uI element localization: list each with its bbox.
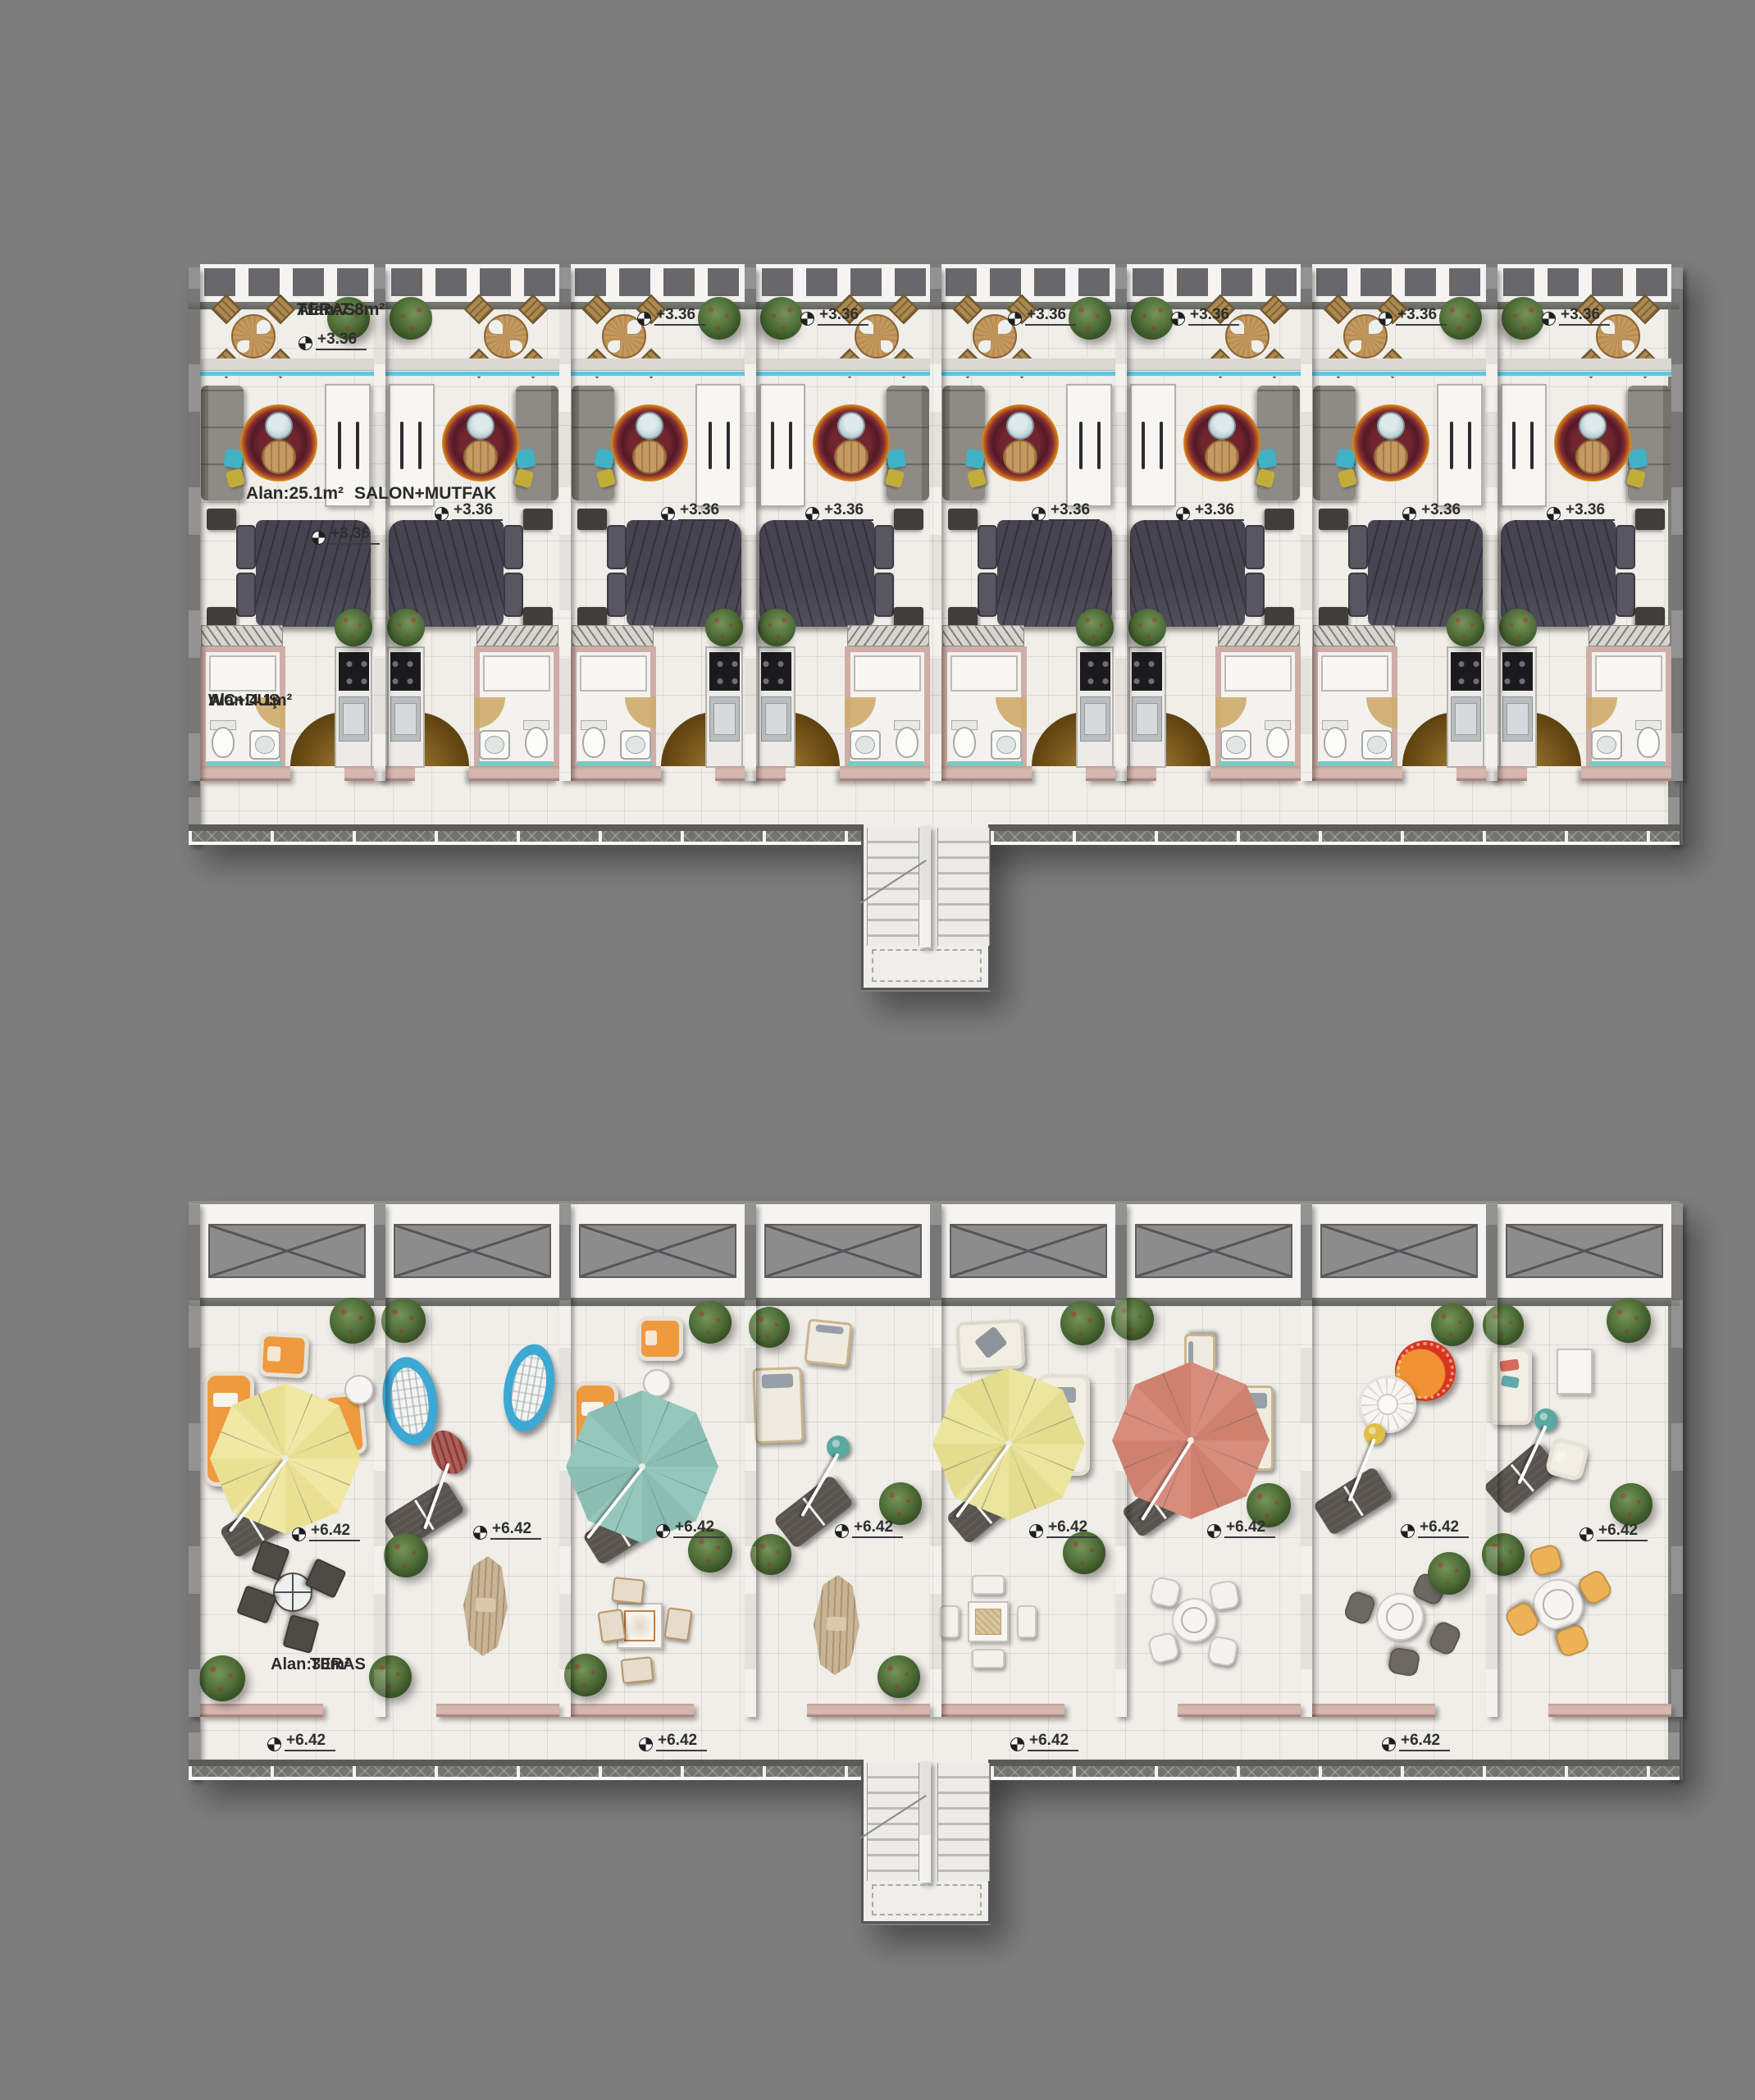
plant (1499, 609, 1537, 646)
wardrobe-door-panel (1501, 384, 1547, 507)
elevation-marker: +3.36 (637, 307, 705, 326)
stair-center-wall (919, 1761, 931, 1883)
elevation-marker-value: +6.42 (1046, 1519, 1097, 1538)
roof-terrace-label-area: Alan:30m² (271, 1655, 350, 1675)
pergola-slats (575, 268, 741, 296)
elevation-marker: +6.42 (1382, 1732, 1450, 1751)
door-handle (338, 422, 341, 469)
parasol-umbrella (210, 1383, 361, 1534)
elevation-marker: +3.36 (435, 502, 503, 521)
stove (1132, 652, 1162, 691)
elevation-marker-value: +3.36 (1188, 307, 1239, 326)
plant (689, 1301, 732, 1344)
plant (387, 609, 425, 646)
elevation-marker-symbol (267, 1737, 281, 1751)
chair (664, 1607, 693, 1641)
elevation-marker: +6.42 (292, 1522, 360, 1541)
kitchen-sink (339, 696, 369, 742)
bed-pillow (1348, 573, 1368, 617)
plant (1131, 297, 1174, 340)
door-handle (771, 422, 774, 469)
sliding-glass-door (571, 371, 745, 377)
stair-flight (937, 1763, 990, 1881)
elevation-marker-symbol (1207, 1524, 1221, 1538)
pergola-slats (204, 268, 370, 296)
shower (580, 655, 647, 692)
stair-landing (872, 1884, 982, 1915)
toilet (896, 727, 919, 758)
table (1557, 1349, 1593, 1395)
upper-unit-4 (756, 264, 930, 781)
elevation-marker: +6.42 (1207, 1519, 1275, 1538)
bathroom-sink (620, 730, 651, 760)
sliding-glass-door (756, 371, 930, 377)
plant (1076, 609, 1114, 646)
wardrobe (942, 625, 1024, 646)
door-handle (789, 422, 792, 469)
round-table (1172, 1598, 1216, 1642)
elevation-marker-symbol (473, 1526, 487, 1540)
skylight-panel (208, 1224, 366, 1278)
shower (1595, 655, 1662, 692)
elevation-marker-value: +6.42 (673, 1519, 724, 1538)
elevation-marker-value: +6.42 (309, 1522, 360, 1541)
elevation-marker: +6.42 (1010, 1732, 1078, 1751)
table (968, 1601, 1009, 1642)
elevation-marker: +3.36 (1032, 502, 1100, 521)
bed-pillow (236, 525, 256, 569)
elevation-marker-value: +6.42 (1224, 1519, 1275, 1538)
stove (390, 652, 421, 691)
chair (972, 1649, 1005, 1669)
wood-coffee-table (1374, 440, 1408, 474)
elevation-marker: +3.36 (312, 526, 380, 545)
elevation-marker-value: +6.42 (656, 1732, 707, 1751)
plant (760, 297, 803, 340)
unit-bottom-wall (1086, 766, 1115, 781)
bathroom-sink (1361, 730, 1393, 760)
bed-pillow (978, 525, 997, 569)
kitchen-sink (1132, 696, 1162, 742)
wardrobe-door-panel (1066, 384, 1112, 507)
glass-coffee-table (467, 412, 495, 440)
elevation-marker-symbol (1008, 312, 1022, 326)
roof-pergola-band (1497, 1204, 1671, 1298)
plant (1502, 297, 1544, 340)
wicker-armchair (258, 1331, 310, 1378)
chair (612, 1577, 645, 1605)
bathroom-sink (991, 730, 1022, 760)
wall (745, 267, 756, 781)
shower (209, 655, 276, 692)
terrace-edge (571, 358, 745, 371)
glass-coffee-table (1006, 412, 1034, 440)
skylight-panel (579, 1224, 736, 1278)
stove (1502, 652, 1533, 691)
toilet (1266, 727, 1289, 758)
bed-pillow (504, 525, 523, 569)
wall (930, 267, 941, 781)
elevation-marker-symbol (1176, 507, 1190, 521)
wall (189, 1203, 200, 1717)
sun-lounger (804, 1318, 852, 1367)
nightstand (523, 509, 553, 530)
pillow-teal (886, 448, 906, 468)
elevation-marker: +3.36 (1402, 502, 1470, 521)
wardrobe (201, 625, 283, 646)
wc-shower-label-area: Alan:4.1m² (208, 692, 292, 711)
skylight-panel (1320, 1224, 1478, 1278)
door-handle (1530, 422, 1534, 469)
roof-unit-bottom-wall (200, 1704, 323, 1717)
wardrobe-door-panel (695, 384, 741, 507)
pergola-slats (1316, 268, 1482, 296)
door-handle (1079, 422, 1083, 469)
elevation-marker-symbol (1029, 1524, 1043, 1538)
elevation-marker: +6.42 (1579, 1522, 1648, 1541)
bed-pillow (1616, 525, 1635, 569)
kitchen-sink (709, 696, 740, 742)
bed-pillow (504, 573, 523, 617)
corridor-railing (189, 1760, 861, 1780)
wall (1301, 1203, 1312, 1717)
wall (1486, 1203, 1497, 1717)
door-handle (1512, 422, 1516, 469)
elevation-marker-value: +3.36 (316, 331, 367, 350)
shower (950, 655, 1018, 692)
unit-bottom-wall (1581, 766, 1671, 781)
unit-bottom-wall (756, 766, 786, 781)
bed-pillow (874, 573, 894, 617)
roof-unit-bottom-wall (571, 1704, 694, 1717)
wood-coffee-table (834, 440, 868, 474)
bed-pillow (1348, 525, 1368, 569)
roof-pergola-band (200, 1204, 374, 1298)
elevation-marker-value: +3.36 (818, 307, 868, 326)
upper-unit-8 (1497, 264, 1671, 781)
elevation-marker-value: +3.36 (329, 526, 380, 545)
roof-pergola-band (1127, 1204, 1301, 1298)
pergola-slats (390, 268, 555, 296)
stove (1080, 652, 1110, 691)
glass-coffee-table (1377, 412, 1405, 440)
elevation-marker-symbol (1032, 507, 1046, 521)
upper-terrace-label-area: Alan:7.8m² (297, 300, 385, 321)
nightstand (207, 509, 236, 530)
elevation-marker: +3.36 (1171, 307, 1239, 326)
terrace-table (484, 314, 528, 358)
terrace-edge (1312, 358, 1486, 371)
elevation-marker-symbol (435, 507, 449, 521)
plant (1428, 1552, 1470, 1595)
elevation-marker-symbol (805, 507, 819, 521)
roof-pergola-band (1312, 1204, 1486, 1298)
elevation-marker-value: +6.42 (1399, 1732, 1450, 1751)
elevation-marker-symbol (1171, 312, 1185, 326)
glass-coffee-table (265, 412, 293, 440)
elevation-marker-symbol (1010, 1737, 1024, 1751)
unit-bottom-wall (1127, 766, 1156, 781)
kitchen-sink (390, 696, 421, 742)
roof-stairwell (861, 1760, 991, 1924)
upper-unit-5 (941, 264, 1115, 781)
stove (339, 652, 369, 691)
elevation-marker-symbol (1379, 312, 1393, 326)
door-handle (400, 422, 403, 469)
toilet (953, 727, 976, 758)
unit-bottom-wall (469, 766, 559, 781)
elevation-marker-symbol (1401, 1524, 1415, 1538)
wardrobe-door-panel (1437, 384, 1483, 507)
wood-coffee-table (1205, 440, 1239, 474)
pillow-teal (1627, 448, 1648, 468)
roof-pergola-band (756, 1204, 930, 1298)
shower (854, 655, 921, 692)
chair (621, 1656, 654, 1684)
pillow-teal (515, 448, 536, 468)
plant (705, 609, 743, 646)
roof-unit-bottom-wall (1548, 1704, 1671, 1717)
plant (384, 1533, 428, 1577)
upper-unit-7 (1312, 264, 1486, 781)
kitchen-sink (1080, 696, 1110, 742)
elevation-marker: +3.36 (661, 502, 729, 521)
plant (1607, 1299, 1651, 1343)
wall (374, 1203, 385, 1717)
elevation-marker-symbol (1542, 312, 1556, 326)
elevation-marker-symbol (835, 1524, 849, 1538)
shower (1321, 655, 1388, 692)
elevation-marker-value: +6.42 (1028, 1732, 1078, 1751)
unit-bottom-wall (1456, 766, 1486, 781)
roof-pergola-band (941, 1204, 1115, 1298)
toilet (1637, 727, 1660, 758)
bathroom-sink (479, 730, 510, 760)
elevation-marker-value: +6.42 (1418, 1519, 1469, 1538)
door-handle (1450, 422, 1453, 469)
glass-coffee-table (636, 412, 663, 440)
door-handle (709, 422, 712, 469)
plant (750, 1534, 791, 1575)
terrace-edge (200, 358, 374, 371)
elevation-marker-value: +3.36 (1420, 502, 1470, 521)
stair-flight (867, 1763, 919, 1881)
elevation-marker-symbol (637, 312, 651, 326)
terrace-edge (1127, 358, 1301, 371)
elevation-marker: +6.42 (473, 1521, 541, 1540)
wardrobe (847, 625, 929, 646)
wall (1301, 267, 1312, 781)
nightstand (894, 509, 923, 530)
elevation-marker-symbol (1402, 507, 1416, 521)
elevation-marker-value: +6.42 (852, 1519, 903, 1538)
corridor-railing (991, 1760, 1680, 1780)
sliding-glass-door (385, 371, 559, 377)
plant (1431, 1303, 1474, 1346)
elevation-marker-symbol (1547, 507, 1561, 521)
upper-unit-3 (571, 264, 745, 781)
plant (335, 609, 372, 646)
unit-bottom-wall (1312, 766, 1402, 781)
nightstand (1319, 509, 1348, 530)
elevation-marker-value: +3.36 (1049, 502, 1100, 521)
elevation-marker-symbol (312, 531, 326, 545)
bed-pillow (607, 525, 627, 569)
living-kitchen-label-area: Alan:25.1m² (246, 484, 344, 504)
door-handle (727, 422, 730, 469)
unit-bottom-wall (840, 766, 930, 781)
elevation-marker-value: +3.36 (1564, 502, 1615, 521)
corridor-railing (189, 824, 861, 845)
bed-pillow (1245, 573, 1265, 617)
wall (374, 267, 385, 781)
elevation-marker-symbol (661, 507, 675, 521)
skylight-panel (764, 1224, 922, 1278)
door-handle (418, 422, 422, 469)
pergola-slats (1502, 268, 1667, 296)
elevation-marker: +3.36 (1176, 502, 1244, 521)
wicker-daybed (955, 1319, 1025, 1372)
wardrobe (476, 625, 558, 646)
wall (1486, 267, 1497, 781)
elevation-marker: +6.42 (267, 1732, 335, 1751)
unit-bottom-wall (1210, 766, 1301, 781)
terrace-edge (1497, 358, 1671, 371)
door-handle (1468, 422, 1471, 469)
round-table (1376, 1593, 1424, 1641)
door-handle (1160, 422, 1163, 469)
unit-bottom-wall (941, 766, 1032, 781)
plant (199, 1655, 245, 1701)
unit-bottom-wall (571, 766, 661, 781)
terrace-edge (385, 358, 559, 371)
bathroom-sink (850, 730, 881, 760)
elevation-marker-value: +3.36 (452, 502, 503, 521)
bed-pillow (236, 573, 256, 617)
sliding-glass-door (1127, 371, 1301, 377)
skylight-panel (1135, 1224, 1292, 1278)
terrace-edge (756, 358, 930, 371)
skylight-panel (394, 1224, 551, 1278)
elevation-marker-symbol (1382, 1737, 1396, 1751)
chair (598, 1609, 627, 1643)
plant (1128, 609, 1166, 646)
terrace-edge (941, 358, 1115, 371)
sliding-glass-door (941, 371, 1115, 377)
wood-coffee-table (262, 440, 296, 474)
elevation-marker-value: +6.42 (285, 1732, 335, 1751)
wardrobe (1589, 625, 1671, 646)
stove (1451, 652, 1481, 691)
door-handle (1097, 422, 1101, 469)
kitchen-sink (761, 696, 791, 742)
nightstand (577, 509, 607, 530)
wall (1671, 267, 1683, 781)
elevation-marker: +6.42 (656, 1519, 724, 1538)
shower (483, 655, 550, 692)
bathroom-sink (249, 730, 280, 760)
stair-center-wall (919, 826, 931, 947)
pergola-slats (1131, 268, 1297, 296)
nightstand (1265, 509, 1294, 530)
elevation-marker-value: +3.36 (654, 307, 705, 326)
wardrobe-door-panel (759, 384, 805, 507)
elevation-marker: +3.36 (1542, 307, 1610, 326)
elevation-marker-value: +6.42 (490, 1521, 541, 1540)
upper-unit-2 (385, 264, 559, 781)
roof-unit-bottom-wall (436, 1704, 559, 1717)
plant (1447, 609, 1484, 646)
chair (940, 1605, 960, 1638)
stair-flight (937, 828, 990, 946)
stair-landing (872, 949, 982, 982)
sun-lounger (752, 1367, 804, 1444)
roof-pergola-band (385, 1204, 559, 1298)
chair (1017, 1605, 1037, 1638)
wood-coffee-table (463, 440, 498, 474)
floor-plan-scene: TERAS Alan:7.8m² SALON+MUTFAK Alan:25.1m… (0, 0, 1755, 2100)
roof-pergola-band (571, 1204, 745, 1298)
toilet (582, 727, 605, 758)
parasol-umbrella (932, 1367, 1085, 1520)
bed-pillow (607, 573, 627, 617)
shower (1224, 655, 1292, 692)
nightstand (1635, 509, 1665, 530)
roof-unit-bottom-wall (941, 1704, 1064, 1717)
toilet (1324, 727, 1347, 758)
wood-coffee-table (632, 440, 667, 474)
parasol-umbrella (1112, 1362, 1270, 1519)
kitchen-sink (1502, 696, 1533, 742)
plant (330, 1298, 376, 1344)
skylight-panel (950, 1224, 1107, 1278)
chair (972, 1575, 1005, 1595)
bathroom-sink (1220, 730, 1251, 760)
elevation-marker-symbol (299, 336, 312, 350)
wardrobe (572, 625, 654, 646)
toilet (212, 727, 235, 758)
pillow-teal (1256, 448, 1277, 468)
sliding-glass-door (1497, 371, 1671, 377)
elevation-marker-value: +3.36 (1396, 307, 1447, 326)
toilet (525, 727, 548, 758)
elevation-marker-value: +3.36 (823, 502, 873, 521)
roof-unit-bottom-wall (807, 1704, 930, 1717)
elevation-marker-value: +3.36 (1025, 307, 1076, 326)
wall (559, 267, 571, 781)
pergola-slats (760, 268, 926, 296)
elevation-marker: +3.36 (805, 502, 873, 521)
elevation-marker: +3.36 (299, 331, 367, 350)
plant (390, 297, 432, 340)
sliding-glass-door (1312, 371, 1486, 377)
bed-pillow (1245, 525, 1265, 569)
pergola-slats (946, 268, 1111, 296)
wall (1671, 1203, 1683, 1717)
elevation-marker: +6.42 (1029, 1519, 1097, 1538)
wardrobe-door-panel (1130, 384, 1176, 507)
elevation-marker-value: +3.36 (1193, 502, 1244, 521)
elevation-marker: +3.36 (1547, 502, 1615, 521)
elevation-marker: +3.36 (1379, 307, 1447, 326)
wicker-armchair (637, 1317, 683, 1361)
elevation-marker: +3.36 (1008, 307, 1076, 326)
glass-coffee-table (1208, 412, 1236, 440)
unit-bottom-wall (344, 766, 374, 781)
stair-flight (867, 828, 919, 946)
glass-coffee-table (837, 412, 865, 440)
roof-unit-bottom-wall (1178, 1704, 1301, 1717)
